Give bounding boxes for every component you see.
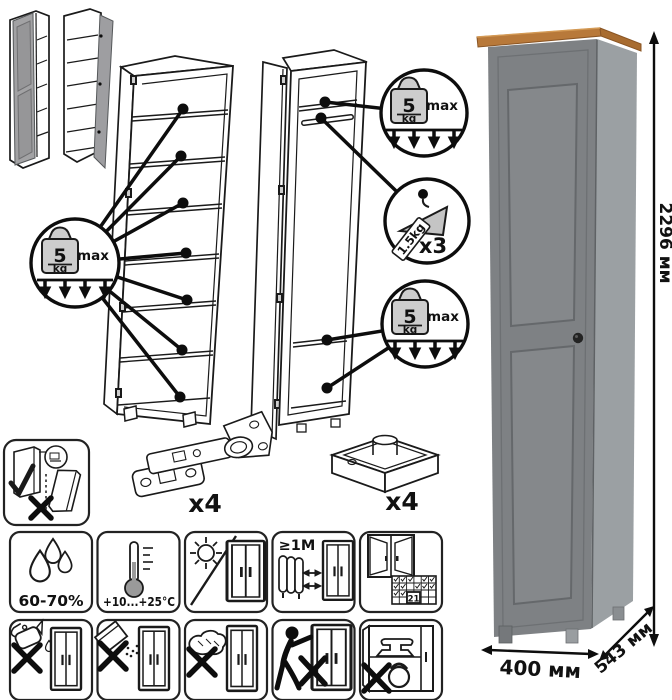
shelf-load-qualifier: max [77,248,109,264]
cabinet-foot [297,424,306,432]
care-cell-no-powder [95,620,179,700]
kettlebell-icon [389,664,409,687]
thumbnail-open-cabinet [64,9,113,168]
load-unit: kg [402,113,417,125]
load-qualifier: max [427,309,459,325]
care-cell-humidity: 60-70% [10,532,92,612]
care-cell-heater-distance: ≥1М [273,532,355,612]
calendar-icon: 21 [392,576,436,605]
load-qualifier: max [426,98,458,114]
door-panel-upper [508,84,577,326]
dimension-width: 400 мм [481,645,599,683]
load-unit: kg [403,324,418,336]
instruction-sheet: 5 kg max 5 kg max 1.5kg x3 5 kg max [0,0,672,700]
wardrobe-interior-diagram [251,50,367,439]
top-shelf-load-badge: 5 kg max [381,70,467,156]
wardrobe-foot [499,626,512,643]
foot-count-label: x4 [385,487,419,516]
temperature-label: +10...+25°C [103,595,175,609]
depth-label: 543 мм [591,618,657,678]
foot-icon [332,436,438,493]
shelf-load-badge: 5 kg max [31,219,119,307]
humidity-label: 60-70% [18,592,84,610]
door-panel-upper [17,21,31,91]
shelf-load-unit: kg [53,263,68,275]
cabinet-foot [183,412,196,427]
heater-distance-label: ≥1М [279,538,316,554]
wardrobe-glyph [323,541,353,600]
wall-anchor-pictogram [4,440,89,525]
care-cell-temperature: +10...+25°C [98,532,180,612]
hanger-hook-icon [418,189,428,199]
wardrobe-glyph [139,627,169,690]
shelf-cabinet-diagram [104,56,233,427]
care-cell-no-dragging [273,620,355,700]
care-cell-no-overload [360,620,442,700]
wardrobe-foot [566,629,578,643]
care-cell-ventilation: 21 [360,532,442,612]
wardrobe-foot [613,607,624,620]
wardrobe-glyph [227,626,257,691]
width-label: 400 мм [499,655,582,683]
door-knob [573,333,583,343]
anchor-detail-inset [45,446,67,468]
calendar-day-label: 21 [408,595,420,605]
foot-part-figure: x4 [332,436,438,517]
cabinet-foot [331,419,340,427]
wardrobe-glyph [51,628,81,690]
hanger-count: x3 [419,234,447,258]
door-panel-lower [18,89,32,159]
cabinet-foot [124,406,137,421]
hinge-part-figure: x4 [125,410,280,518]
diagram-canvas: 5 kg max 5 kg max 1.5kg x3 5 kg max [0,0,672,700]
arrow-up-icon [649,31,659,44]
bottom-load-badge: 5 kg max [382,281,468,367]
care-cell-no-scouring [185,620,267,700]
hanger-load-badge: 1.5kg x3 [385,179,469,263]
thumbnail-closed-cabinet [10,11,49,168]
height-label: 2296 мм [655,202,672,283]
dimension-height: 2296 мм [649,31,672,647]
door-panel-lower [511,346,574,604]
care-cell-no-liquids [9,615,92,700]
wardrobe-glyph [227,541,265,601]
hinge-count-label: x4 [188,489,222,518]
care-cell-sunlight [185,532,267,612]
product-render [477,28,641,643]
radiator-icon [279,556,303,599]
arrow-left-icon [481,645,492,655]
wardrobe-side-face [591,39,637,629]
